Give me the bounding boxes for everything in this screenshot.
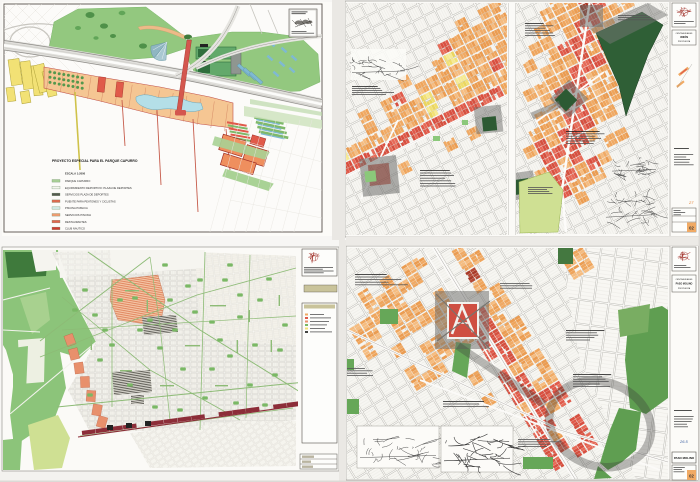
svg-text:SERVICIOS PLAZA DE DEPORTES: SERVICIOS PLAZA DE DEPORTES <box>65 193 109 197</box>
svg-text:PISCINA PUBLICA: PISCINA PUBLICA <box>65 206 88 210</box>
svg-text:EQUIPAMIENTO DEPORTIVO: PLAZA: EQUIPAMIENTO DEPORTIVO: PLAZA DE DEPORTE… <box>65 186 132 190</box>
svg-text:PUENTE PARA PEATONES Y CICLIST: PUENTE PARA PEATONES Y CICLISTAS <box>65 199 116 203</box>
svg-text:CENTRALIDADES: CENTRALIDADES <box>676 32 693 35</box>
svg-text:02: 02 <box>689 474 694 479</box>
svg-text:PARQUE CAPURRO: PARQUE CAPURRO <box>65 179 90 183</box>
svg-text:ESCALA 1:2000: ESCALA 1:2000 <box>65 172 86 176</box>
svg-text:26.5: 26.5 <box>679 439 689 444</box>
svg-text:PROPUESTA: PROPUESTA <box>678 287 691 290</box>
svg-text:SERVICIOS PISCINA: SERVICIOS PISCINA <box>65 213 91 217</box>
svg-text:27: 27 <box>688 200 694 205</box>
svg-text:PROPUESTA: PROPUESTA <box>678 40 691 43</box>
svg-text:RESTAURANTES: RESTAURANTES <box>65 220 87 224</box>
svg-text:PASO MOLINO: PASO MOLINO <box>676 283 693 286</box>
svg-text:PASO MOLINO: PASO MOLINO <box>674 456 695 460</box>
svg-text:CENTRALIDADES: CENTRALIDADES <box>676 278 693 281</box>
svg-text:CLUB NAUTICO: CLUB NAUTICO <box>65 227 85 231</box>
svg-text:PROYECTO ESPECIAL PARA EL PARQ: PROYECTO ESPECIAL PARA EL PARQUE CAPURRO <box>52 159 138 163</box>
svg-text:02: 02 <box>689 226 694 231</box>
